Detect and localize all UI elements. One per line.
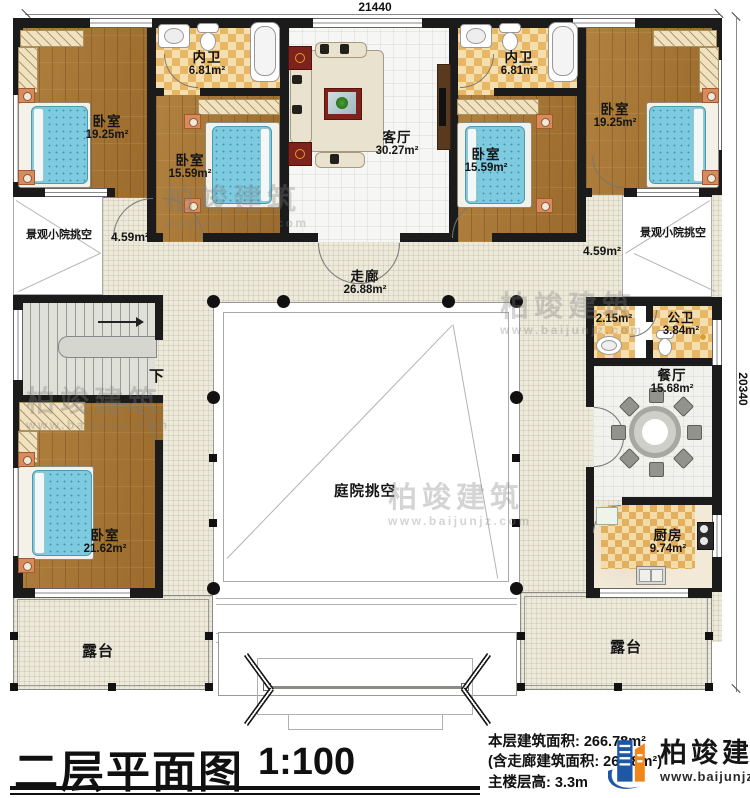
wall [586,188,592,197]
room-label-corridor: 走廊26.88m² [325,269,405,297]
toilet-bowl [502,32,518,51]
title-underline [10,793,480,795]
brand-logo-icon [608,737,654,791]
railing-post [10,683,18,691]
wardrobe [18,47,38,93]
toilet-bowl [658,338,672,356]
wall [586,588,600,598]
column [510,582,523,595]
area-label-wash: 2.15m² [590,313,638,326]
column [277,295,290,308]
stair-down-label: 下 [146,369,168,386]
side-table [288,142,312,166]
wardrobe [699,47,719,93]
wall [624,188,637,197]
bed-pillow [260,128,270,202]
dining-table-top [642,419,668,445]
bathtub-inner [254,26,276,76]
room-label-dining: 餐厅15.68m² [632,368,712,396]
step-line [216,604,517,605]
porch-ridge [270,686,462,689]
room-label-public-bath: 公卫3.84m² [648,311,714,338]
wall [400,233,455,242]
porch-roof-base [288,714,443,730]
nightstand [18,452,35,467]
dining-chair [687,425,702,440]
dining-chair [649,462,664,477]
wall [203,233,318,242]
column-post [512,519,520,527]
sofa-cushion [330,154,339,164]
room-label-bedroom-topright: 卧室19.25m² [570,102,660,130]
room-label-kitchen: 厨房9.74m² [628,528,708,556]
area-label-void-left: 4.59m² [100,231,160,244]
wall [13,295,163,303]
column-post [512,454,520,462]
nightstand [18,88,35,103]
wall [13,588,35,598]
wall [156,88,164,96]
wall [13,188,45,197]
room-label-bedroom-topleft: 卧室19.25m² [62,114,152,142]
sofa-cushion [320,44,329,54]
title-underline [10,786,480,790]
wardrobe [198,99,280,115]
kitchen-sink-basin [639,569,651,582]
room-label-void-left: 景观小院挑空 [14,229,104,241]
bed-pillow [34,472,45,554]
wall [200,88,280,96]
toilet-bowl [200,32,216,51]
sofa-cushion [340,44,349,54]
step-line [216,598,517,599]
column [207,582,220,595]
wall [622,497,712,505]
railing-post [705,632,713,640]
wall [646,340,653,358]
nightstand [702,88,719,103]
washbasin-bowl [164,28,184,44]
dimension-right-value: 20340 [736,368,750,410]
wardrobe [20,30,84,47]
nightstand [18,558,35,573]
column [510,391,523,404]
tv [439,88,446,126]
wardrobe [653,30,717,47]
wall [586,358,712,366]
nightstand [536,198,553,213]
room-label-bedroom-left: 卧室21.62m² [60,528,150,556]
wall [688,588,712,598]
brand-url: www.baijunjz.com [660,769,748,784]
area-label-void-right: 4.59m² [572,245,632,258]
sofa-cushion [292,75,302,84]
column-post [209,454,217,462]
wall [107,188,115,197]
room-label-courtyard: 庭院挑空 [315,484,415,500]
railing-post [10,632,18,640]
bathtub-inner [552,26,574,76]
brand-logo-svg [608,737,654,791]
washbasin-bowl [601,340,617,351]
washbasin-bowl [466,28,486,44]
window [573,18,635,28]
window [45,188,107,197]
column [510,295,523,308]
stair-arrowhead [136,317,144,327]
side-table [288,46,312,70]
stair-landing-rail [58,336,157,358]
wall [577,18,586,242]
window [600,588,688,598]
dining-chair [611,425,626,440]
wall [586,297,712,306]
courtyard-inner-edge [223,312,509,582]
window [13,310,23,380]
railing-post [705,683,713,691]
nightstand [184,198,201,213]
nightstand [702,170,719,185]
room-label-living: 客厅30.27m² [352,130,442,158]
railing-post [614,683,622,691]
room-label-bath-right: 内卫6.81m² [484,50,554,78]
railing-post [205,632,213,640]
wall [494,88,577,96]
stair-direction-arrow [98,321,136,323]
wall [155,295,163,340]
wardrobe [19,402,85,431]
railing-post [205,683,213,691]
dimension-top-value: 21440 [300,0,450,14]
railing-post [517,632,525,640]
railing-post [108,683,116,691]
floor-plan-canvas: 卧室19.25m² 内卫6.81m² 卧室15.59m² 客厅30.27m² 内… [0,0,750,798]
brand-block: 柏竣建筑 www.baijunjz.com [660,740,748,784]
wall [492,233,577,242]
dimension-line-top [25,14,720,15]
column [442,295,455,308]
wall [586,505,594,590]
kitchen-counter [596,507,618,525]
room-label-terrace-right: 露台 [596,640,656,657]
room-label-bedroom-midleft: 卧室15.59m² [145,153,235,181]
wall [155,440,163,598]
sofa-cushion [292,105,302,114]
wall [130,588,163,598]
nightstand [536,114,553,129]
wardrobe [457,99,539,115]
window [90,18,152,28]
nightstand [18,170,35,185]
railing-post [517,683,525,691]
wall [586,497,593,505]
column-post [209,519,217,527]
wall [699,188,712,197]
window [313,18,422,28]
room-label-void-right: 景观小院挑空 [628,227,718,239]
column [207,391,220,404]
nightstand [184,114,201,129]
room-label-bath-left: 内卫6.81m² [172,50,242,78]
column [207,295,220,308]
plant [336,97,348,109]
scale-label: 1:100 [258,741,355,784]
room-label-bedroom-midright: 卧室15.59m² [441,147,531,175]
room-label-terrace-left: 露台 [68,644,128,661]
window [35,588,130,598]
kitchen-sink-basin [651,569,663,582]
brand-name: 柏竣建筑 [660,740,748,767]
window [637,188,699,197]
dimension-line-right [736,18,737,692]
